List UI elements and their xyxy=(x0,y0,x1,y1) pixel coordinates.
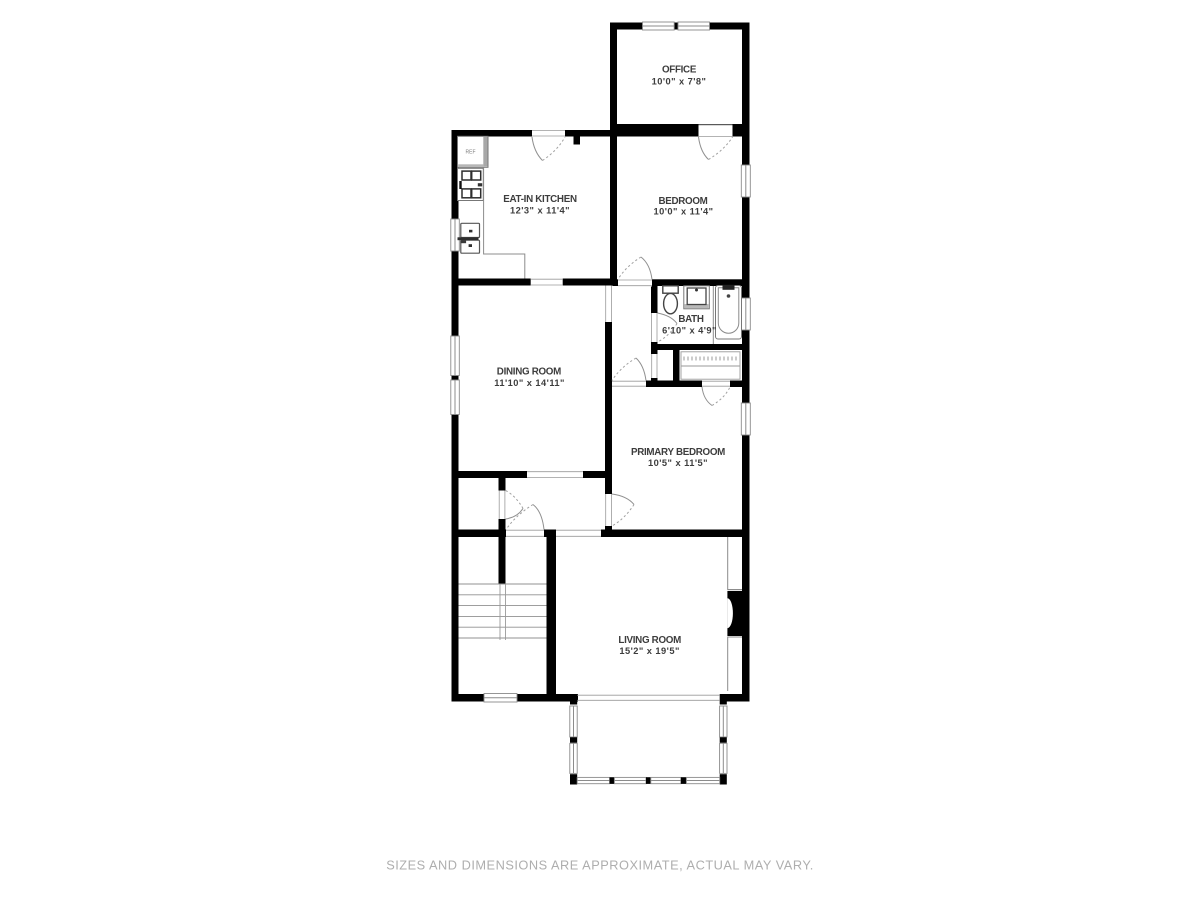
svg-text:PRIMARY BEDROOM: PRIMARY BEDROOM xyxy=(631,447,725,458)
svg-text:DINING ROOM: DINING ROOM xyxy=(497,367,561,378)
svg-text:12'3" x 11'4": 12'3" x 11'4" xyxy=(510,205,570,215)
svg-text:10'5" x 11'5": 10'5" x 11'5" xyxy=(648,458,708,468)
svg-text:LIVING ROOM: LIVING ROOM xyxy=(618,635,681,646)
svg-text:SIZES AND DIMENSIONS ARE APPRO: SIZES AND DIMENSIONS ARE APPROXIMATE, AC… xyxy=(386,858,814,873)
svg-text:BATH: BATH xyxy=(678,314,704,325)
svg-text:OFFICE: OFFICE xyxy=(662,65,697,76)
svg-text:10'0" x 11'4": 10'0" x 11'4" xyxy=(654,206,714,216)
svg-text:REF: REF xyxy=(466,150,476,156)
svg-text:15'2" x 19'5": 15'2" x 19'5" xyxy=(619,646,679,656)
svg-text:11'10" x 14'11": 11'10" x 14'11" xyxy=(494,378,565,388)
svg-text:6'10" x 4'9": 6'10" x 4'9" xyxy=(662,325,717,335)
svg-text:10'0" x 7'8": 10'0" x 7'8" xyxy=(652,76,707,86)
svg-text:EAT-IN KITCHEN: EAT-IN KITCHEN xyxy=(503,194,577,205)
